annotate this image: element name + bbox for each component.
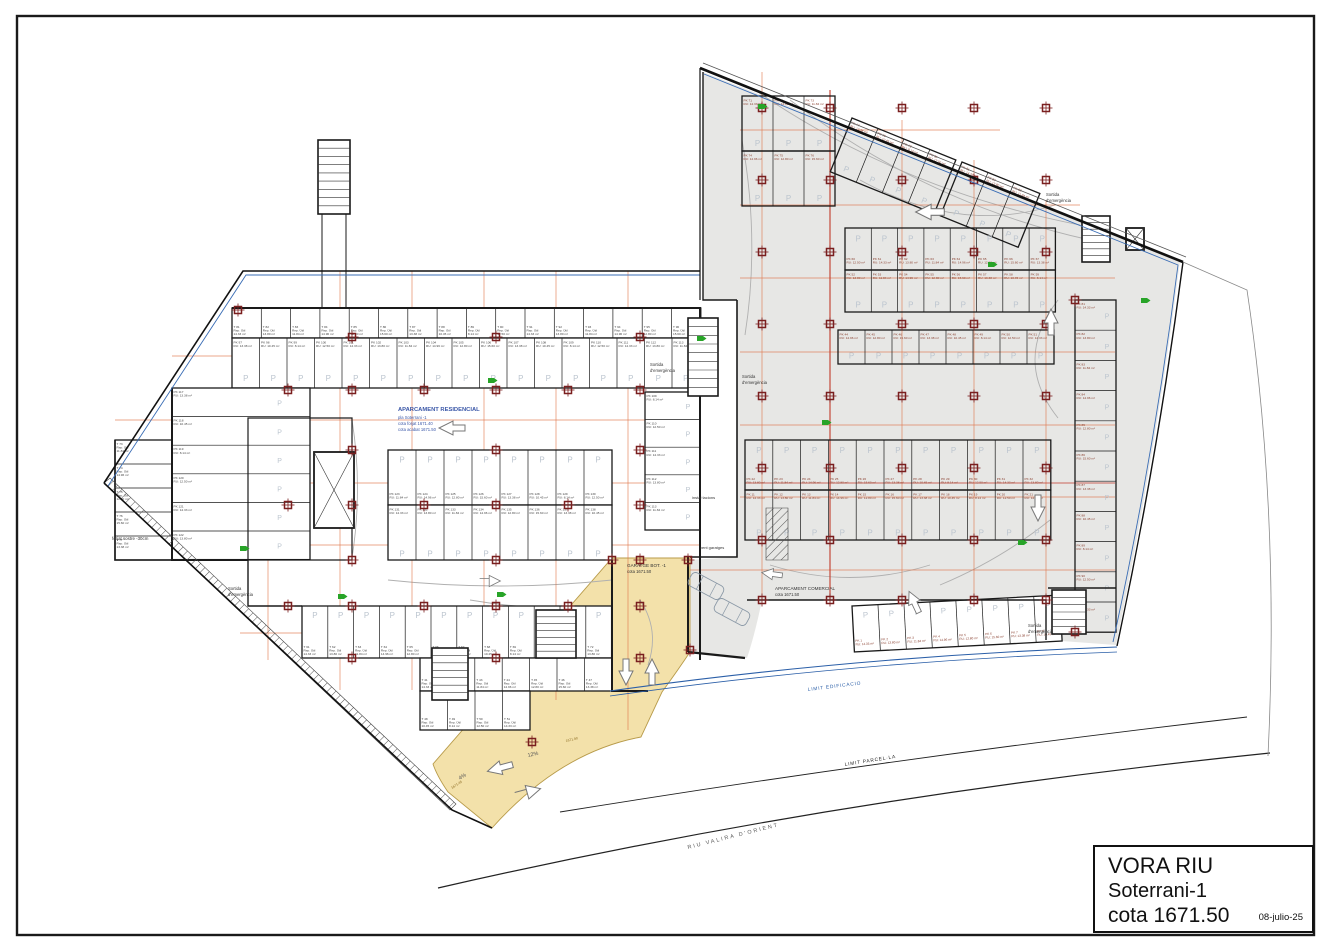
stall-label: RU: 11.84 m² — [390, 496, 408, 500]
p-mark: P — [756, 446, 761, 455]
parking-row: PPK 109RU: 8.14 m²PPK 110RU: 12.50 m²PPK… — [645, 392, 700, 530]
stall-label: RU: 15.60 m² — [1004, 261, 1022, 265]
parking-row: PPK 117RU: 13.38 m²PPK 118RU: 10.45 m²PP… — [172, 388, 310, 560]
stall-label: RU: 8.14 m² — [969, 496, 986, 500]
stall-label: 11.84 m² — [292, 332, 304, 336]
drawing-date: 08-julio-25 — [1259, 912, 1303, 923]
stair-core — [432, 648, 468, 700]
p-mark: P — [1006, 446, 1011, 455]
p-mark: P — [786, 194, 791, 203]
p-mark: P — [483, 549, 488, 558]
p-mark: P — [408, 374, 413, 383]
p-mark: P — [1105, 465, 1110, 472]
stall-label: RU: 8.14 m² — [558, 496, 575, 500]
p-mark: P — [1105, 586, 1110, 593]
p-mark: P — [840, 529, 845, 538]
stall-label: 13.80 m² — [587, 652, 599, 656]
stall-label: RU: 13.80 m² — [747, 481, 765, 485]
stall-label: RU: 12.80 m² — [775, 157, 793, 161]
stall-label: RU: 12.50 m² — [1002, 336, 1020, 340]
project-name: VORA RIU — [1108, 853, 1312, 879]
plan-annotation: d'emergència — [1028, 629, 1054, 634]
p-mark: P — [390, 611, 395, 620]
stall-label: 8.14 m² — [468, 332, 479, 336]
p-mark: P — [1105, 435, 1110, 442]
stall-label: 10.45 m² — [422, 724, 434, 728]
p-mark: P — [882, 300, 887, 309]
stall-label: RU: 10.45 m² — [913, 481, 931, 485]
p-mark: P — [1105, 495, 1110, 502]
p-mark: P — [596, 611, 601, 620]
p-mark: P — [595, 455, 600, 464]
plan-annotation: Sortida — [650, 362, 664, 367]
p-mark: P — [511, 549, 516, 558]
p-mark: P — [539, 455, 544, 464]
stall-label: RU: 8.14 m² — [174, 451, 191, 455]
p-mark: P — [1034, 529, 1039, 538]
stall-label: RU: 10.45 m² — [530, 496, 548, 500]
stall-label: RU: 15.60 m² — [894, 336, 912, 340]
p-mark: P — [923, 446, 928, 455]
stall-label: 14.33 m² — [304, 652, 316, 656]
stall-label: RU: 14.96 m² — [1077, 396, 1095, 400]
p-mark: P — [381, 374, 386, 383]
stall-label: 11.84 m² — [355, 652, 367, 656]
stair-outline — [318, 140, 350, 214]
p-mark: P — [441, 611, 446, 620]
p-mark: P — [686, 487, 691, 494]
p-mark: P — [961, 235, 966, 244]
p-mark: P — [786, 139, 791, 148]
stall-label: RU: 12.50 m² — [316, 344, 334, 348]
p-mark: P — [567, 549, 572, 558]
stall-label: 15.60 m² — [559, 685, 571, 689]
plan-annotation: RIU VALIRA D'ORIENT — [687, 822, 780, 851]
stall-label: RU: 13.38 m² — [886, 481, 904, 485]
stall-label: 13.80 m² — [329, 652, 341, 656]
plan-annotation: Sortida — [228, 586, 242, 591]
plan-annotation: cota acabat 1671.50 — [398, 427, 437, 432]
p-mark: P — [277, 515, 282, 522]
p-mark: P — [876, 352, 881, 361]
p-mark: P — [277, 544, 282, 551]
p-mark: P — [467, 611, 472, 620]
p-mark: P — [957, 352, 962, 361]
stall-label: RU: 10.45 m² — [586, 511, 604, 515]
p-mark: P — [1038, 352, 1043, 361]
p-mark: P — [1040, 235, 1045, 244]
stair-core — [318, 140, 350, 214]
stall-label: RU: 8.14 m² — [289, 344, 306, 348]
stall-label: RU: 15.60 m² — [1077, 457, 1095, 461]
boundary-line — [1183, 262, 1271, 756]
p-mark: P — [519, 611, 524, 620]
stall-label: 13.38 m² — [586, 685, 598, 689]
wall — [248, 560, 302, 606]
stall-label: 13.80 m² — [263, 332, 275, 336]
p-mark: P — [686, 515, 691, 522]
stall-label: RU: 12.80 m² — [925, 276, 943, 280]
plan-annotation: Sortida — [742, 374, 756, 379]
p-mark: P — [686, 404, 691, 411]
column-marker — [346, 554, 359, 567]
p-mark: P — [1105, 374, 1110, 381]
parking-row: PPK 131RU: 14.33 m²PPK 132RU: 13.80 m²PP… — [388, 505, 612, 560]
p-mark: P — [271, 374, 276, 383]
stall-label: 10.45 m² — [439, 332, 451, 336]
stall-label: RU: 12.50 m² — [847, 261, 865, 265]
p-mark: P — [961, 300, 966, 309]
stall-label: RU: 13.38 m² — [913, 496, 931, 500]
parking-row: PPK 123RU: 11.84 m²PPK 124RU: 14.96 m²PP… — [388, 450, 612, 505]
stall-label: RU: 8.14 m² — [1031, 276, 1048, 280]
p-mark: P — [399, 549, 404, 558]
p-mark: P — [1105, 344, 1110, 351]
p-mark: P — [518, 374, 523, 383]
stall-label: 11.84 m² — [476, 685, 488, 689]
p-mark: P — [511, 455, 516, 464]
p-mark: P — [908, 300, 913, 309]
p-mark: P — [546, 374, 551, 383]
stall-label: RU: 10.45 m² — [1004, 276, 1022, 280]
p-mark: P — [312, 611, 317, 620]
stall-label: RU: 13.38 m² — [1031, 261, 1049, 265]
p-mark: P — [628, 374, 633, 383]
p-mark: P — [923, 529, 928, 538]
stall-label: 14.33 m² — [234, 332, 246, 336]
p-mark: P — [1040, 300, 1045, 309]
stall-label: RU: 14.96 m² — [418, 496, 436, 500]
stall-label: 13.38 m² — [409, 332, 421, 336]
stall-label: RU: 14.96 m² — [952, 261, 970, 265]
p-mark: P — [889, 609, 895, 618]
p-mark: P — [979, 529, 984, 538]
p-mark: P — [784, 446, 789, 455]
stall-label: 14.96 m² — [117, 473, 129, 477]
p-mark: P — [427, 549, 432, 558]
stall-label: RU: 13.38 m² — [921, 336, 939, 340]
stall-label: 14.33 m² — [527, 332, 539, 336]
p-mark: P — [1034, 446, 1039, 455]
p-mark: P — [992, 604, 998, 613]
p-mark: P — [277, 401, 282, 408]
plan-annotation: LIMIT EDIFICACIO — [808, 680, 862, 693]
stall-label: RU: 14.96 m² — [802, 481, 820, 485]
plan-annotation: pla Soterrani -1 — [398, 415, 427, 420]
p-mark: P — [840, 446, 845, 455]
p-mark: P — [338, 611, 343, 620]
drive-arrow — [439, 421, 465, 435]
stall-label: RU: 13.38 m² — [502, 496, 520, 500]
p-mark: P — [595, 549, 600, 558]
boundary-line — [560, 717, 1247, 812]
stall-label: RU: 14.96 m² — [830, 496, 848, 500]
stall-label: 14.96 m² — [504, 685, 516, 689]
plan-annotation: instal·lacions — [692, 495, 715, 500]
plan-annotation: d'emergència — [742, 380, 768, 385]
p-mark: P — [817, 139, 822, 148]
column-marker — [1040, 102, 1053, 115]
stall-label: RU: 13.80 m² — [847, 276, 865, 280]
exit-route-marker — [338, 594, 348, 599]
p-mark: P — [984, 352, 989, 361]
stall-label: RU: 14.33 m² — [1029, 336, 1047, 340]
stall-label: RU: 12.80 m² — [454, 344, 472, 348]
p-mark: P — [493, 611, 498, 620]
stall-label: RU: 13.38 m² — [1077, 487, 1095, 491]
p-mark: P — [277, 458, 282, 465]
p-mark: P — [867, 529, 872, 538]
stall-label: RU: 12.80 m² — [1077, 426, 1095, 430]
parking-row: PPK 97RU: 13.38 m²PPK 98RU: 10.45 m²PPK … — [232, 338, 700, 388]
p-mark: P — [415, 611, 420, 620]
plan-annotation: cota 1671.50 — [775, 592, 800, 597]
parking-row: T 81Rep. Útil14.33 m²T 82Rep. Útil13.80 … — [232, 308, 701, 338]
p-mark: P — [882, 235, 887, 244]
plan-annotation: d'emergència — [1046, 198, 1072, 203]
p-mark: P — [277, 429, 282, 436]
p-mark: P — [243, 374, 248, 383]
plan-annotation: cota 1671.50 — [627, 569, 652, 574]
stall-label: RU: 8.14 m² — [941, 481, 958, 485]
p-mark: P — [427, 455, 432, 464]
stall-label: RU: 11.84 m² — [1077, 366, 1095, 370]
stall-label: RU: 11.84 m² — [802, 496, 820, 500]
plan-annotation: APARCAMENT COMERCIAL — [775, 586, 836, 591]
p-mark: P — [1105, 314, 1110, 321]
stall-label: 13.38 m² — [117, 545, 129, 549]
stall-label: RU: 14.33 m² — [747, 496, 765, 500]
stall-label: RU: 13.38 m² — [234, 344, 252, 348]
stall-label: RU: 13.80 m² — [371, 344, 389, 348]
stall-label: RU: 14.96 m² — [426, 344, 444, 348]
stall-label: RU: 10.45 m² — [261, 344, 279, 348]
stall-label: RU: 14.33 m² — [619, 344, 637, 348]
stall-label: 8.14 m² — [510, 652, 521, 656]
p-mark: P — [903, 352, 908, 361]
stall-label: RU: 12.50 m² — [969, 481, 987, 485]
stall-label: RU: 12.50 m² — [591, 344, 609, 348]
floor-plan-svg: T 81Rep. Útil14.33 m²T 82Rep. Útil13.80 … — [0, 0, 1330, 950]
stall-label: RU: 15.60 m² — [530, 511, 548, 515]
stall-label: RU: 11.84 m² — [399, 344, 417, 348]
stall-label: RU: 11.84 m² — [647, 508, 665, 512]
p-mark: P — [934, 300, 939, 309]
stall-label: 14.33 m² — [504, 724, 516, 728]
stall-label: 11.84 m² — [585, 332, 597, 336]
stall-label: RU: 13.80 m² — [174, 537, 192, 541]
stall-label: RU: 11.84 m² — [774, 481, 792, 485]
stair-outline — [432, 648, 468, 700]
stair-core — [536, 610, 576, 658]
stall-label: RU: 12.50 m² — [174, 479, 192, 483]
stall-label: RU: 14.96 m² — [840, 336, 858, 340]
stall-label: RU: 12.50 m² — [997, 496, 1015, 500]
p-mark: P — [1105, 404, 1110, 411]
hatched-zone — [766, 508, 788, 560]
p-mark: P — [855, 235, 860, 244]
stall-label: RU: 10.45 m² — [536, 344, 554, 348]
stall-label: RU: 12.50 m² — [586, 496, 604, 500]
elevator-shaft — [314, 452, 354, 528]
stall-label: RU: 15.60 m² — [481, 344, 499, 348]
stall-label: 12.50 m² — [477, 724, 489, 728]
level-name: Soterrani-1 — [1108, 879, 1312, 903]
p-mark: P — [1018, 602, 1024, 611]
stall-label: 12.80 m² — [407, 652, 419, 656]
stall-label: RU: 15.60 m² — [806, 157, 824, 161]
p-mark: P — [863, 610, 869, 619]
p-mark: P — [436, 374, 441, 383]
stall-label: RU: 13.80 m² — [418, 511, 436, 515]
stall-label: RU: 13.80 m² — [647, 480, 665, 484]
stall-label: RU: 15.60 m² — [858, 481, 876, 485]
p-mark: P — [686, 432, 691, 439]
plan-annotation: APARCAMENT RESIDENCIAL — [398, 407, 480, 413]
p-mark: P — [483, 455, 488, 464]
title-block: VORA RIU Soterrani-1 cota 1671.50 08-jul… — [1093, 845, 1314, 933]
p-mark: P — [867, 446, 872, 455]
wall — [322, 214, 346, 308]
plan-annotation: LIMIT PARCEL·LA — [844, 754, 896, 768]
p-mark: P — [567, 455, 572, 464]
stall-label: 12.80 m² — [644, 332, 656, 336]
stall-label: 15.60 m² — [117, 521, 129, 525]
p-mark: P — [940, 606, 946, 615]
stall-label: RU: 12.80 m² — [830, 481, 848, 485]
plan-annotation: d'emergència — [650, 368, 676, 373]
p-mark: P — [1105, 616, 1110, 623]
stall-label: RU: 14.96 m² — [744, 157, 762, 161]
stall-label: 14.96 m² — [381, 652, 393, 656]
stall-label: RU: 12.80 m² — [446, 496, 464, 500]
stall-label: 8.14 m² — [449, 724, 460, 728]
stall-label: RU: 13.38 m² — [509, 344, 527, 348]
plan-annotation: Sortida — [1046, 192, 1060, 197]
stall-label: 13.80 m² — [556, 332, 568, 336]
column-marker — [1040, 174, 1053, 187]
p-mark: P — [455, 549, 460, 558]
stair-outline — [688, 318, 718, 396]
p-mark: P — [455, 455, 460, 464]
stall-label: 15.60 m² — [380, 332, 392, 336]
stall-label: RU: 12.50 m² — [1077, 577, 1095, 581]
plan-annotation: forjat sostre -30cm — [112, 536, 149, 541]
stall-label: RU: 12.80 m² — [867, 336, 885, 340]
drive-arrow — [480, 575, 501, 586]
p-mark: P — [1013, 300, 1018, 309]
p-mark: P — [1105, 555, 1110, 562]
p-mark: P — [353, 374, 358, 383]
p-mark: P — [656, 374, 661, 383]
stall-label: RU: 13.80 m² — [774, 496, 792, 500]
plan-annotation: Sortida — [1028, 623, 1042, 628]
stall-label: RU: 14.33 m² — [174, 508, 192, 512]
stall-label: RU: 12.80 m² — [858, 496, 876, 500]
p-mark: P — [539, 549, 544, 558]
p-mark: P — [930, 352, 935, 361]
p-mark: P — [463, 374, 468, 383]
p-mark: P — [1013, 235, 1018, 244]
stall-label: RU: 13.80 m² — [899, 261, 917, 265]
stall-label: RU: 13.80 m² — [1077, 336, 1095, 340]
p-mark: P — [1006, 529, 1011, 538]
stall-label: RU: 13.38 m² — [558, 511, 576, 515]
stall-label: 15.60 m² — [673, 332, 685, 336]
plan-annotation: d'emergència — [228, 592, 254, 597]
stall-label: RU: 10.45 m² — [948, 336, 966, 340]
p-mark: P — [326, 374, 331, 383]
p-mark: P — [908, 235, 913, 244]
stair-core — [688, 318, 718, 396]
p-mark: P — [987, 235, 992, 244]
stall-label: 14.96 m² — [321, 332, 333, 336]
stall-label: RU: 8.14 m² — [975, 336, 992, 340]
p-mark: P — [979, 446, 984, 455]
stall-label: RU: 8.14 m² — [1077, 547, 1094, 551]
stall-label: RU: 12.80 m² — [502, 511, 520, 515]
p-mark: P — [277, 487, 282, 494]
p-mark: P — [1105, 525, 1110, 532]
p-mark: P — [849, 352, 854, 361]
stall-label: 14.96 m² — [614, 332, 626, 336]
stall-label: RU: 14.33 m² — [647, 453, 665, 457]
stall-label: RU: 14.33 m² — [873, 261, 891, 265]
p-mark: P — [951, 446, 956, 455]
p-mark: P — [573, 374, 578, 383]
stall-label: RU: 14.33 m² — [1077, 306, 1095, 310]
stall-label: RU: 11.84 m² — [873, 276, 891, 280]
stall-label: RU: 13.80 m² — [1025, 481, 1043, 485]
stall-label: RU: 15.60 m² — [886, 496, 904, 500]
column-marker — [896, 102, 909, 115]
p-mark: P — [1011, 352, 1016, 361]
p-mark: P — [298, 374, 303, 383]
p-mark: P — [755, 194, 760, 203]
p-mark: P — [951, 529, 956, 538]
stall-label: RU: 13.38 m² — [174, 394, 192, 398]
stall-label: RU: 10.45 m² — [1077, 517, 1095, 521]
stall-label: RU: 15.60 m² — [474, 496, 492, 500]
p-mark: P — [817, 194, 822, 203]
p-mark: P — [364, 611, 369, 620]
p-mark: P — [934, 235, 939, 244]
stall-label: RU: 14.33 m² — [997, 481, 1015, 485]
stall-label: RU: 12.50 m² — [647, 425, 665, 429]
p-mark: P — [895, 446, 900, 455]
stall-label: RU: 8.14 m² — [647, 398, 664, 402]
stall-label: RU: 14.33 m² — [344, 344, 362, 348]
stall-label: RU: 15.60 m² — [952, 276, 970, 280]
stall-label: RU: 13.38 m² — [978, 276, 996, 280]
p-mark: P — [855, 300, 860, 309]
drawing-sheet: T 81Rep. Útil14.33 m²T 82Rep. Útil13.80 … — [0, 0, 1330, 950]
p-mark: P — [755, 139, 760, 148]
stall-label: RU: 14.33 m² — [390, 511, 408, 515]
p-mark: P — [399, 455, 404, 464]
p-mark: P — [966, 605, 972, 614]
stair-core — [1052, 590, 1086, 634]
stall-label: 12.80 m² — [531, 685, 543, 689]
column-marker — [968, 102, 981, 115]
p-mark: P — [601, 374, 606, 383]
stall-label: RU: 8.14 m² — [564, 344, 581, 348]
plan-annotation: vent garatges — [700, 545, 724, 550]
stall-label: RU: 14.96 m² — [899, 276, 917, 280]
p-mark: P — [686, 459, 691, 466]
plan-annotation: GARATGE BOT. -1 — [627, 563, 666, 568]
p-mark: P — [812, 529, 817, 538]
